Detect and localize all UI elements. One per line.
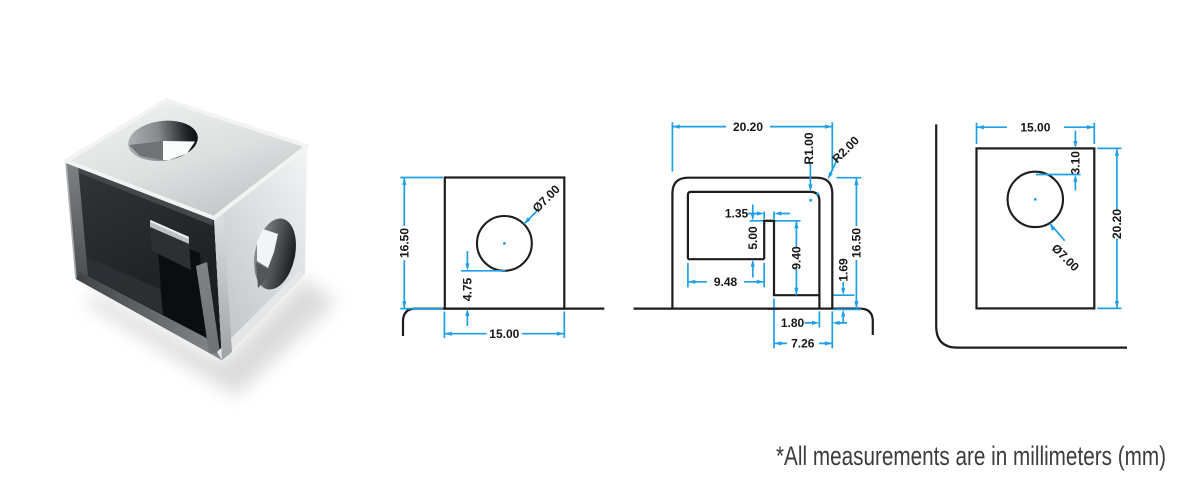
svg-text:3.10: 3.10	[1069, 151, 1083, 175]
svg-text:15.00: 15.00	[1020, 120, 1050, 134]
svg-text:5.00: 5.00	[746, 226, 760, 250]
svg-text:1.80: 1.80	[781, 316, 805, 330]
svg-text:Ø7.00: Ø7.00	[530, 182, 563, 215]
svg-text:15.00: 15.00	[489, 327, 519, 341]
svg-text:Ø7.00: Ø7.00	[1049, 241, 1082, 274]
svg-text:4.75: 4.75	[461, 277, 475, 301]
svg-text:R2.00: R2.00	[829, 133, 862, 166]
svg-text:7.26: 7.26	[791, 337, 815, 351]
svg-text:R1.00: R1.00	[802, 132, 816, 164]
svg-text:*All measurements are in milli: *All measurements are in millimeters (mm…	[776, 441, 1166, 471]
svg-text:9.48: 9.48	[714, 275, 738, 289]
svg-text:1.35: 1.35	[725, 207, 749, 221]
svg-text:16.50: 16.50	[398, 228, 412, 258]
svg-text:20.20: 20.20	[1110, 209, 1124, 239]
svg-text:9.40: 9.40	[790, 246, 804, 270]
svg-text:1.69: 1.69	[836, 258, 850, 282]
svg-text:16.50: 16.50	[850, 228, 864, 258]
svg-text:20.20: 20.20	[733, 120, 763, 134]
